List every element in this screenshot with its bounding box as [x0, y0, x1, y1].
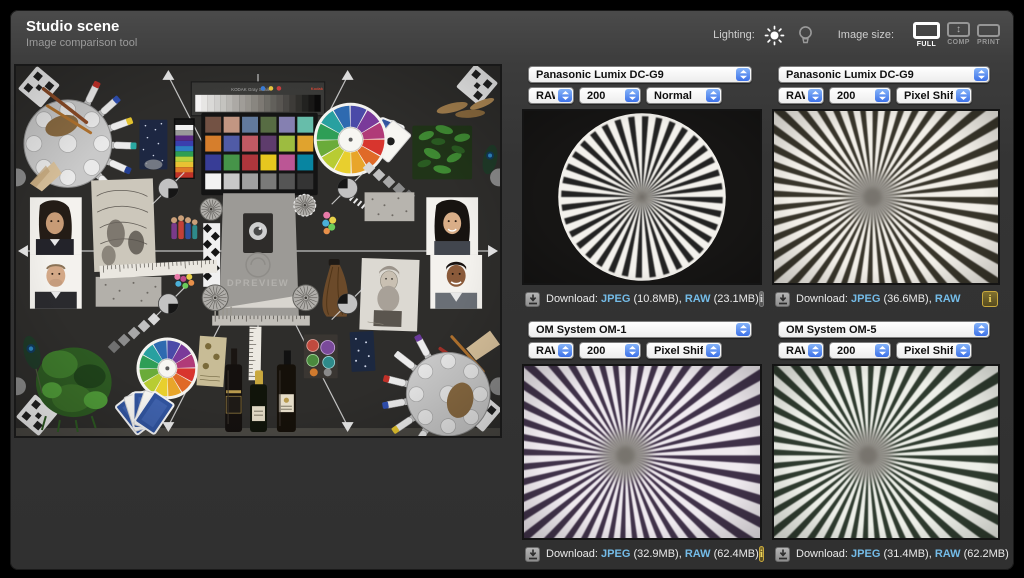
image-size-label: Image size:	[838, 29, 894, 41]
select-stepper-icon	[558, 89, 572, 102]
jpeg-size: (32.9MB),	[633, 548, 681, 560]
camera-select-value: OM System OM-5	[786, 323, 971, 337]
download-jpeg-link[interactable]: JPEG	[851, 293, 880, 305]
jpeg-size: (31.4MB),	[883, 548, 931, 560]
size-print-button[interactable]: PRINT	[977, 22, 1000, 46]
format-select[interactable]: RAW	[528, 342, 574, 359]
camera-select[interactable]: OM System OM-1	[528, 321, 752, 338]
app-window: Studio scene Image comparison tool Light…	[10, 10, 1014, 570]
download-label: Download:	[546, 548, 598, 560]
tungsten-lighting-button[interactable]	[795, 23, 817, 47]
mode-select[interactable]: Pixel Shift	[896, 342, 972, 359]
size-full-button[interactable]: FULL	[913, 22, 940, 48]
mode-select[interactable]: Pixel Shift	[646, 342, 722, 359]
comparison-crop-image[interactable]	[772, 364, 1000, 540]
comparison-panel-4: OM System OM-5 RAW 200 Pixel Shift	[772, 321, 1000, 563]
comparison-crop-image[interactable]	[522, 109, 762, 285]
select-stepper-icon	[974, 68, 988, 81]
lighting-label: Lighting:	[713, 29, 755, 41]
page-title: Studio scene	[26, 18, 119, 35]
camera-select[interactable]: OM System OM-5	[778, 321, 990, 338]
full-size-icon	[913, 22, 940, 39]
raw-size: (62.4MB)	[714, 548, 759, 560]
sun-icon	[764, 25, 785, 46]
download-icon[interactable]	[525, 292, 540, 307]
iso-select[interactable]: 200	[579, 342, 641, 359]
download-jpeg-link[interactable]: JPEG	[851, 548, 880, 560]
comparison-panels: Panasonic Lumix DC-G9 RAW 200 Normal	[522, 66, 1002, 563]
download-raw-link[interactable]: RAW	[685, 293, 711, 305]
camera-select-value: Panasonic Lumix DC-G9	[536, 68, 733, 82]
camera-select-value: Panasonic Lumix DC-G9	[786, 68, 971, 82]
raw-size: (23.1MB)	[714, 293, 759, 305]
iso-select[interactable]: 200	[579, 87, 641, 104]
format-select[interactable]: RAW	[778, 87, 824, 104]
camera-select[interactable]: Panasonic Lumix DC-G9	[778, 66, 990, 83]
comparison-panel-1: Panasonic Lumix DC-G9 RAW 200 Normal	[522, 66, 762, 308]
camera-select-value: OM System OM-1	[536, 323, 733, 337]
select-stepper-icon	[558, 344, 572, 357]
select-stepper-icon	[625, 344, 639, 357]
download-icon[interactable]	[775, 292, 790, 307]
download-icon[interactable]	[775, 547, 790, 562]
image-size-buttons: FULL ↕ COMP PRINT	[913, 22, 1000, 48]
select-stepper-icon	[956, 89, 970, 102]
download-icon[interactable]	[525, 547, 540, 562]
info-button[interactable]: i	[982, 291, 998, 307]
download-label: Download:	[796, 293, 848, 305]
select-stepper-icon	[974, 323, 988, 336]
download-label: Download:	[546, 293, 598, 305]
comparison-panel-3: OM System OM-1 RAW 200 Pixel Shift	[522, 321, 762, 563]
comparison-crop-image[interactable]	[522, 364, 762, 540]
select-stepper-icon	[808, 344, 822, 357]
size-comp-button[interactable]: ↕ COMP	[947, 22, 970, 46]
page-subtitle: Image comparison tool	[26, 37, 137, 49]
select-stepper-icon	[736, 68, 750, 81]
comparison-panel-2: Panasonic Lumix DC-G9 RAW 200 Pixel Shif…	[772, 66, 1000, 308]
iso-select[interactable]: 200	[829, 342, 891, 359]
mode-select[interactable]: Normal	[646, 87, 722, 104]
comp-size-icon: ↕	[947, 22, 970, 37]
comparison-crop-image[interactable]	[772, 109, 1000, 285]
download-raw-link[interactable]: RAW	[935, 293, 961, 305]
iso-select[interactable]: 200	[829, 87, 891, 104]
daylight-lighting-button[interactable]	[764, 23, 786, 47]
select-stepper-icon	[736, 323, 750, 336]
jpeg-size: (10.8MB),	[633, 293, 681, 305]
select-stepper-icon	[625, 89, 639, 102]
select-stepper-icon	[706, 344, 720, 357]
select-stepper-icon	[706, 89, 720, 102]
select-stepper-icon	[808, 89, 822, 102]
info-button[interactable]: i	[759, 291, 764, 307]
download-row: Download: JPEG (32.9MB), RAW (62.4MB) i	[525, 545, 760, 563]
download-raw-link[interactable]: RAW	[685, 548, 711, 560]
print-size-icon	[977, 24, 1000, 37]
download-row: Download: JPEG (36.6MB), RAW i	[775, 290, 998, 308]
download-row: Download: JPEG (31.4MB), RAW (62.2MB) i	[775, 545, 998, 563]
studio-scene-image[interactable]: KODAK Gray Scale Kodak	[14, 64, 502, 438]
jpeg-size: (36.6MB),	[883, 293, 931, 305]
mode-select[interactable]: Pixel Shift	[896, 87, 972, 104]
download-row: Download: JPEG (10.8MB), RAW (23.1MB) i	[525, 290, 760, 308]
format-select[interactable]: RAW	[778, 342, 824, 359]
format-select[interactable]: RAW	[528, 87, 574, 104]
download-jpeg-link[interactable]: JPEG	[601, 293, 630, 305]
info-button[interactable]: i	[759, 546, 764, 562]
select-stepper-icon	[875, 344, 889, 357]
download-jpeg-link[interactable]: JPEG	[601, 548, 630, 560]
download-label: Download:	[796, 548, 848, 560]
raw-size: (62.2MB)	[964, 548, 1009, 560]
download-raw-link[interactable]: RAW	[935, 548, 961, 560]
select-stepper-icon	[956, 344, 970, 357]
lightbulb-icon	[798, 25, 813, 46]
select-stepper-icon	[875, 89, 889, 102]
camera-select[interactable]: Panasonic Lumix DC-G9	[528, 66, 752, 83]
header: Studio scene Image comparison tool Light…	[10, 10, 1014, 58]
